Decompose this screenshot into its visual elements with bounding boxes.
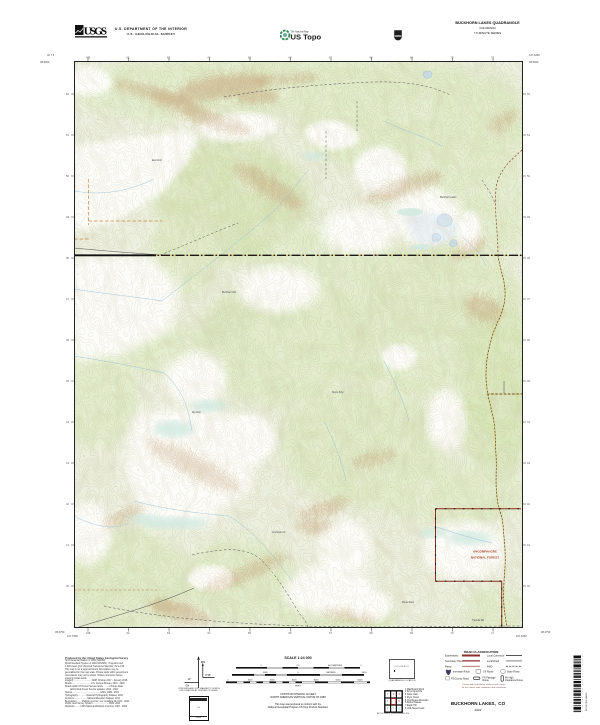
- svg-text:44: 44: [66, 420, 69, 424]
- svg-text:8: 8: [582, 685, 583, 687]
- svg-text:Moore Park: Moore Park: [402, 602, 415, 604]
- svg-text:Cushman Ck: Cushman Ck: [272, 532, 286, 534]
- svg-text:6: 6: [582, 665, 583, 667]
- svg-text:Interstate Route: Interstate Route: [453, 671, 471, 674]
- svg-text:8: 8: [582, 699, 583, 701]
- svg-text:BUCKHORN LAKES: BUCKHORN LAKES: [585, 692, 588, 711]
- svg-text:Buckhorn Lakes: Buckhorn Lakes: [440, 197, 457, 199]
- svg-text:42: 42: [66, 502, 69, 506]
- svg-text:70: 70: [451, 631, 454, 635]
- svg-text:East Fork: East Fork: [152, 159, 163, 162]
- svg-text:Clearance Route: Clearance Route: [505, 679, 524, 682]
- svg-text:48: 48: [66, 256, 69, 260]
- svg-text:Secondary Hwy: Secondary Hwy: [445, 660, 463, 663]
- svg-text:for the correct road condition: for the correct road conditions and rest…: [462, 686, 507, 689]
- svg-text:1000: 1000: [362, 672, 368, 674]
- svg-text:3: 3: [582, 656, 583, 658]
- svg-text:107.6250: 107.6250: [529, 53, 540, 57]
- svg-text:41: 41: [527, 543, 530, 547]
- svg-text:5: 5: [582, 702, 583, 704]
- svg-text:71: 71: [491, 631, 494, 635]
- svg-text:METERS: METERS: [326, 672, 336, 674]
- svg-text:US Topo: US Topo: [291, 33, 322, 41]
- svg-text:48: 48: [527, 256, 530, 260]
- svg-text:0°36′: 0°36′: [205, 673, 211, 677]
- svg-text:107.7500: 107.7500: [67, 634, 78, 638]
- svg-text:6000: 6000: [358, 679, 364, 681]
- svg-text:68: 68: [370, 56, 373, 60]
- svg-text:MN: MN: [201, 660, 205, 664]
- svg-text:107.6250: 107.6250: [516, 634, 527, 638]
- svg-text:42: 42: [527, 502, 530, 506]
- svg-text:1: 1: [360, 665, 362, 667]
- svg-text:38.4750: 38.4750: [55, 630, 65, 634]
- svg-text:47: 47: [66, 297, 69, 301]
- svg-text:USGS: USGS: [84, 26, 107, 38]
- svg-text:5000: 5000: [336, 679, 342, 681]
- svg-text:2000: 2000: [270, 679, 276, 681]
- svg-text:UNCOMPAHGRE: UNCOMPAHGRE: [473, 550, 497, 554]
- svg-text:FS/County Road: FS/County Road: [451, 677, 469, 680]
- svg-text:50: 50: [527, 174, 530, 178]
- svg-text:1: 1: [582, 676, 583, 678]
- svg-text:Storm King: Storm King: [332, 391, 344, 394]
- svg-text:62: 62: [127, 631, 130, 635]
- svg-text:State Route: State Route: [507, 671, 520, 674]
- svg-text:52: 52: [527, 92, 530, 96]
- svg-text:3: 3: [582, 694, 583, 696]
- svg-text:Dry Fork: Dry Fork: [192, 412, 202, 414]
- svg-text:0: 0: [297, 672, 299, 674]
- svg-text:63: 63: [167, 56, 170, 60]
- svg-text:63: 63: [167, 631, 170, 635]
- svg-text:1: 1: [260, 665, 262, 667]
- svg-text:2: 2: [582, 707, 583, 709]
- svg-text:62: 62: [127, 56, 130, 60]
- svg-text:46: 46: [66, 338, 69, 342]
- svg-text:1000: 1000: [263, 672, 269, 674]
- svg-text:Local Connector: Local Connector: [487, 655, 505, 658]
- svg-text:47: 47: [527, 297, 530, 301]
- svg-text:49: 49: [527, 215, 530, 219]
- svg-text:Ramp: Ramp: [445, 665, 452, 668]
- svg-text:Buckhorn Mtn: Buckhorn Mtn: [222, 291, 237, 294]
- svg-text:Route: Route: [483, 679, 490, 682]
- svg-text:38.4750: 38.4750: [541, 630, 551, 634]
- svg-text:66: 66: [289, 631, 292, 635]
- svg-text:KILOMETERS: KILOMETERS: [328, 665, 343, 667]
- svg-text:45: 45: [527, 379, 530, 383]
- svg-text:41: 41: [66, 543, 69, 547]
- svg-text:1000: 1000: [248, 679, 254, 681]
- svg-text:52: 52: [66, 92, 69, 96]
- svg-text:69: 69: [410, 631, 413, 635]
- svg-text:43: 43: [527, 461, 530, 465]
- svg-text:69: 69: [410, 56, 413, 60]
- svg-text:49: 49: [66, 215, 69, 219]
- svg-text:44: 44: [527, 420, 530, 424]
- svg-text:43: 43: [66, 461, 69, 465]
- svg-text:68: 68: [370, 631, 373, 635]
- svg-text:0.5: 0.5: [296, 665, 300, 667]
- svg-text:66: 66: [289, 56, 292, 60]
- svg-text:45: 45: [66, 379, 69, 383]
- svg-text:Please with both Route markers: Please with both Route markers and curre…: [463, 683, 506, 686]
- svg-text:4000: 4000: [314, 679, 320, 681]
- svg-text:65: 65: [248, 56, 251, 60]
- svg-text:40 7.5: 40 7.5: [47, 53, 55, 57]
- svg-text:Local Road: Local Road: [487, 660, 500, 663]
- svg-text:US Route: US Route: [483, 671, 494, 674]
- svg-text:1: 1: [582, 662, 583, 664]
- svg-text:70: 70: [451, 56, 454, 60]
- svg-text:64: 64: [208, 56, 211, 60]
- svg-text:2: 2: [582, 671, 583, 673]
- svg-text:50: 50: [66, 174, 69, 178]
- svg-text:Transfer Rd: Transfer Rd: [472, 620, 485, 622]
- svg-text:71: 71: [491, 56, 494, 60]
- svg-text:6: 6: [582, 681, 583, 683]
- svg-text:4WD: 4WD: [487, 665, 493, 668]
- svg-text:40: 40: [527, 584, 530, 588]
- svg-text:67: 67: [329, 56, 332, 60]
- svg-text:51: 51: [527, 133, 530, 137]
- svg-text:3000: 3000: [292, 679, 298, 681]
- svg-text:0: 0: [582, 691, 583, 693]
- svg-text:435: 435: [86, 56, 91, 60]
- svg-text:FEET: FEET: [295, 685, 301, 687]
- svg-text:1: 1: [582, 711, 583, 713]
- svg-text:Expressway: Expressway: [445, 655, 459, 658]
- svg-text:11°: 11°: [188, 677, 192, 681]
- svg-text:67: 67: [329, 631, 332, 635]
- svg-text:65: 65: [248, 631, 251, 635]
- svg-text:64: 64: [208, 631, 211, 635]
- svg-text:40: 40: [66, 584, 69, 588]
- svg-text:2: 2: [227, 679, 229, 681]
- svg-text:NATIONAL FOREST: NATIONAL FOREST: [471, 556, 499, 560]
- svg-text:51: 51: [66, 133, 69, 137]
- svg-text:46: 46: [527, 338, 530, 342]
- svg-text:38.5000: 38.5000: [529, 60, 539, 64]
- svg-text:435: 435: [86, 631, 91, 635]
- svg-text:38.5000: 38.5000: [40, 60, 50, 64]
